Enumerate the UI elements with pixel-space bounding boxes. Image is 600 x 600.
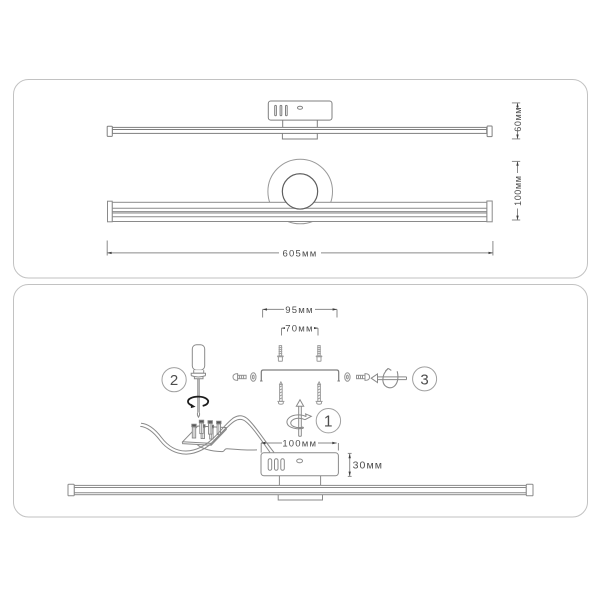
svg-text:95мм: 95мм <box>285 305 313 316</box>
svg-text:100мм: 100мм <box>513 175 523 205</box>
svg-text:605мм: 605мм <box>283 248 318 259</box>
svg-text:2: 2 <box>170 372 178 389</box>
svg-text:100мм: 100мм <box>282 439 317 450</box>
svg-text:70мм: 70мм <box>285 324 313 335</box>
svg-text:1: 1 <box>324 413 333 430</box>
svg-text:3: 3 <box>420 372 428 389</box>
svg-text:30мм: 30мм <box>353 459 384 471</box>
svg-text:60мм: 60мм <box>513 107 523 132</box>
